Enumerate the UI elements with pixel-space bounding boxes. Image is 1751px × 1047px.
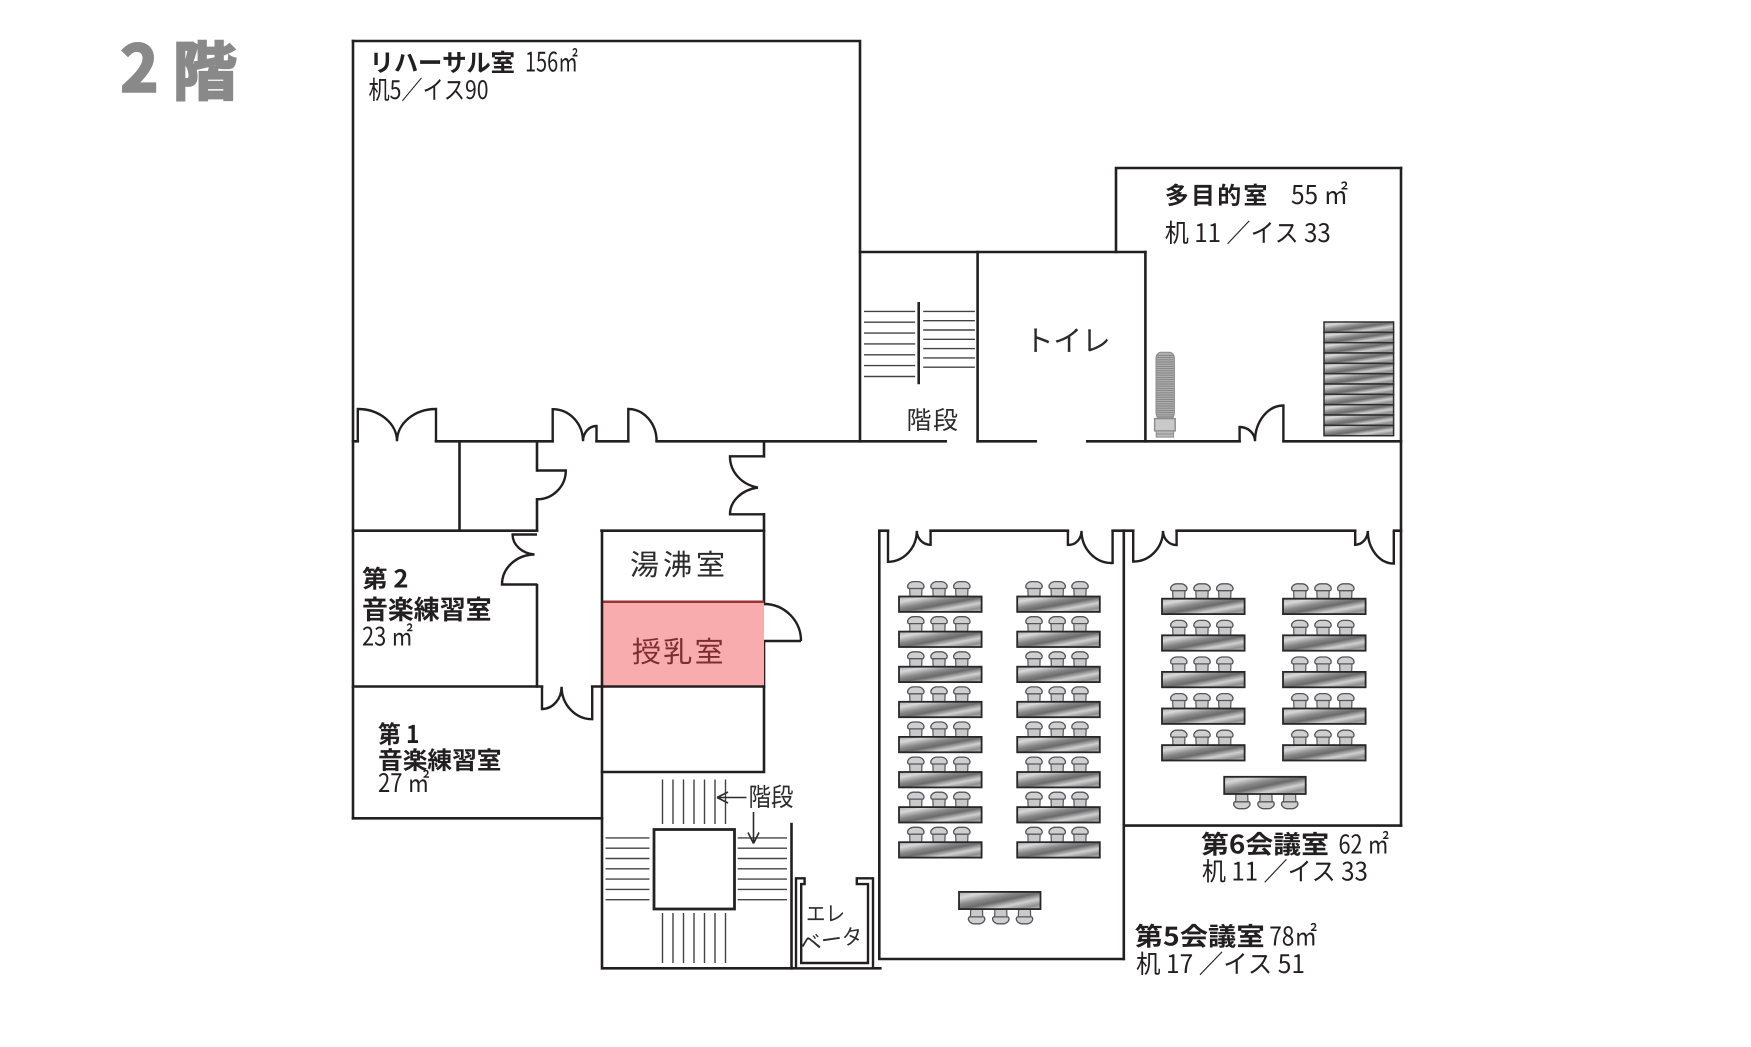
svg-text:23 ㎡: 23 ㎡ [362,617,413,654]
svg-text:27 ㎡: 27 ㎡ [378,763,430,800]
svg-text:机 17 ／イス 51: 机 17 ／イス 51 [1136,944,1305,981]
svg-text:156㎡: 156㎡ [525,41,578,80]
svg-text:55 ㎡: 55 ㎡ [1291,175,1348,212]
svg-text:授乳室: 授乳室 [632,629,726,671]
svg-text:階段: 階段 [907,401,960,437]
svg-text:トイレ: トイレ [1025,318,1111,360]
svg-text:机 11 ／イス 33: 机 11 ／イス 33 [1165,213,1331,250]
svg-text:多目的室: 多目的室 [1165,176,1270,211]
svg-text:2階: 2階 [121,19,237,114]
svg-text:机5／イス90: 机5／イス90 [369,70,489,107]
svg-text:湯沸室: 湯沸室 [630,542,729,584]
svg-text:机 11 ／イス 33: 机 11 ／イス 33 [1202,852,1368,889]
svg-text:階段: 階段 [749,777,794,814]
